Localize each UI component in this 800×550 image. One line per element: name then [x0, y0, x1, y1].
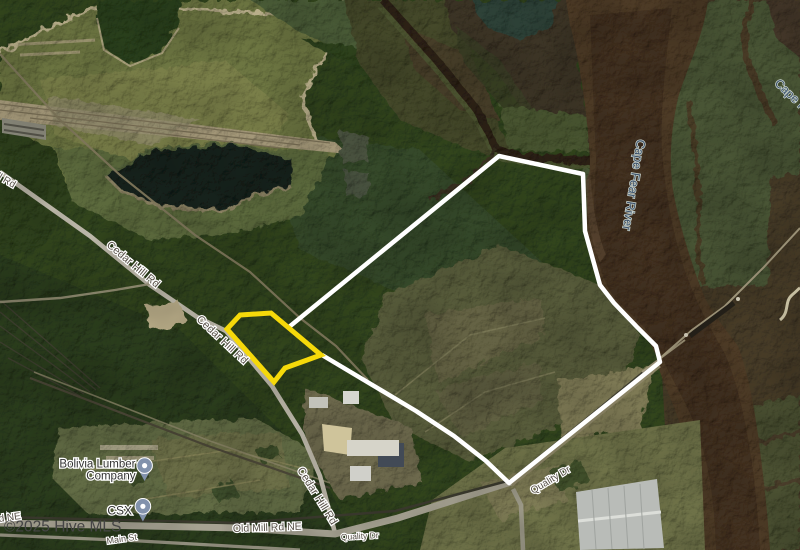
svg-text:©2025 Hive MLS: ©2025 Hive MLS	[4, 519, 121, 536]
svg-text:Old Mill Rd NE: Old Mill Rd NE	[233, 521, 302, 535]
svg-text:Bolivia Lumber: Bolivia Lumber	[59, 459, 135, 471]
svg-text:Quality Dr: Quality Dr	[341, 530, 379, 542]
svg-text:Company: Company	[86, 471, 135, 483]
svg-text:CSX: CSX	[107, 504, 132, 518]
